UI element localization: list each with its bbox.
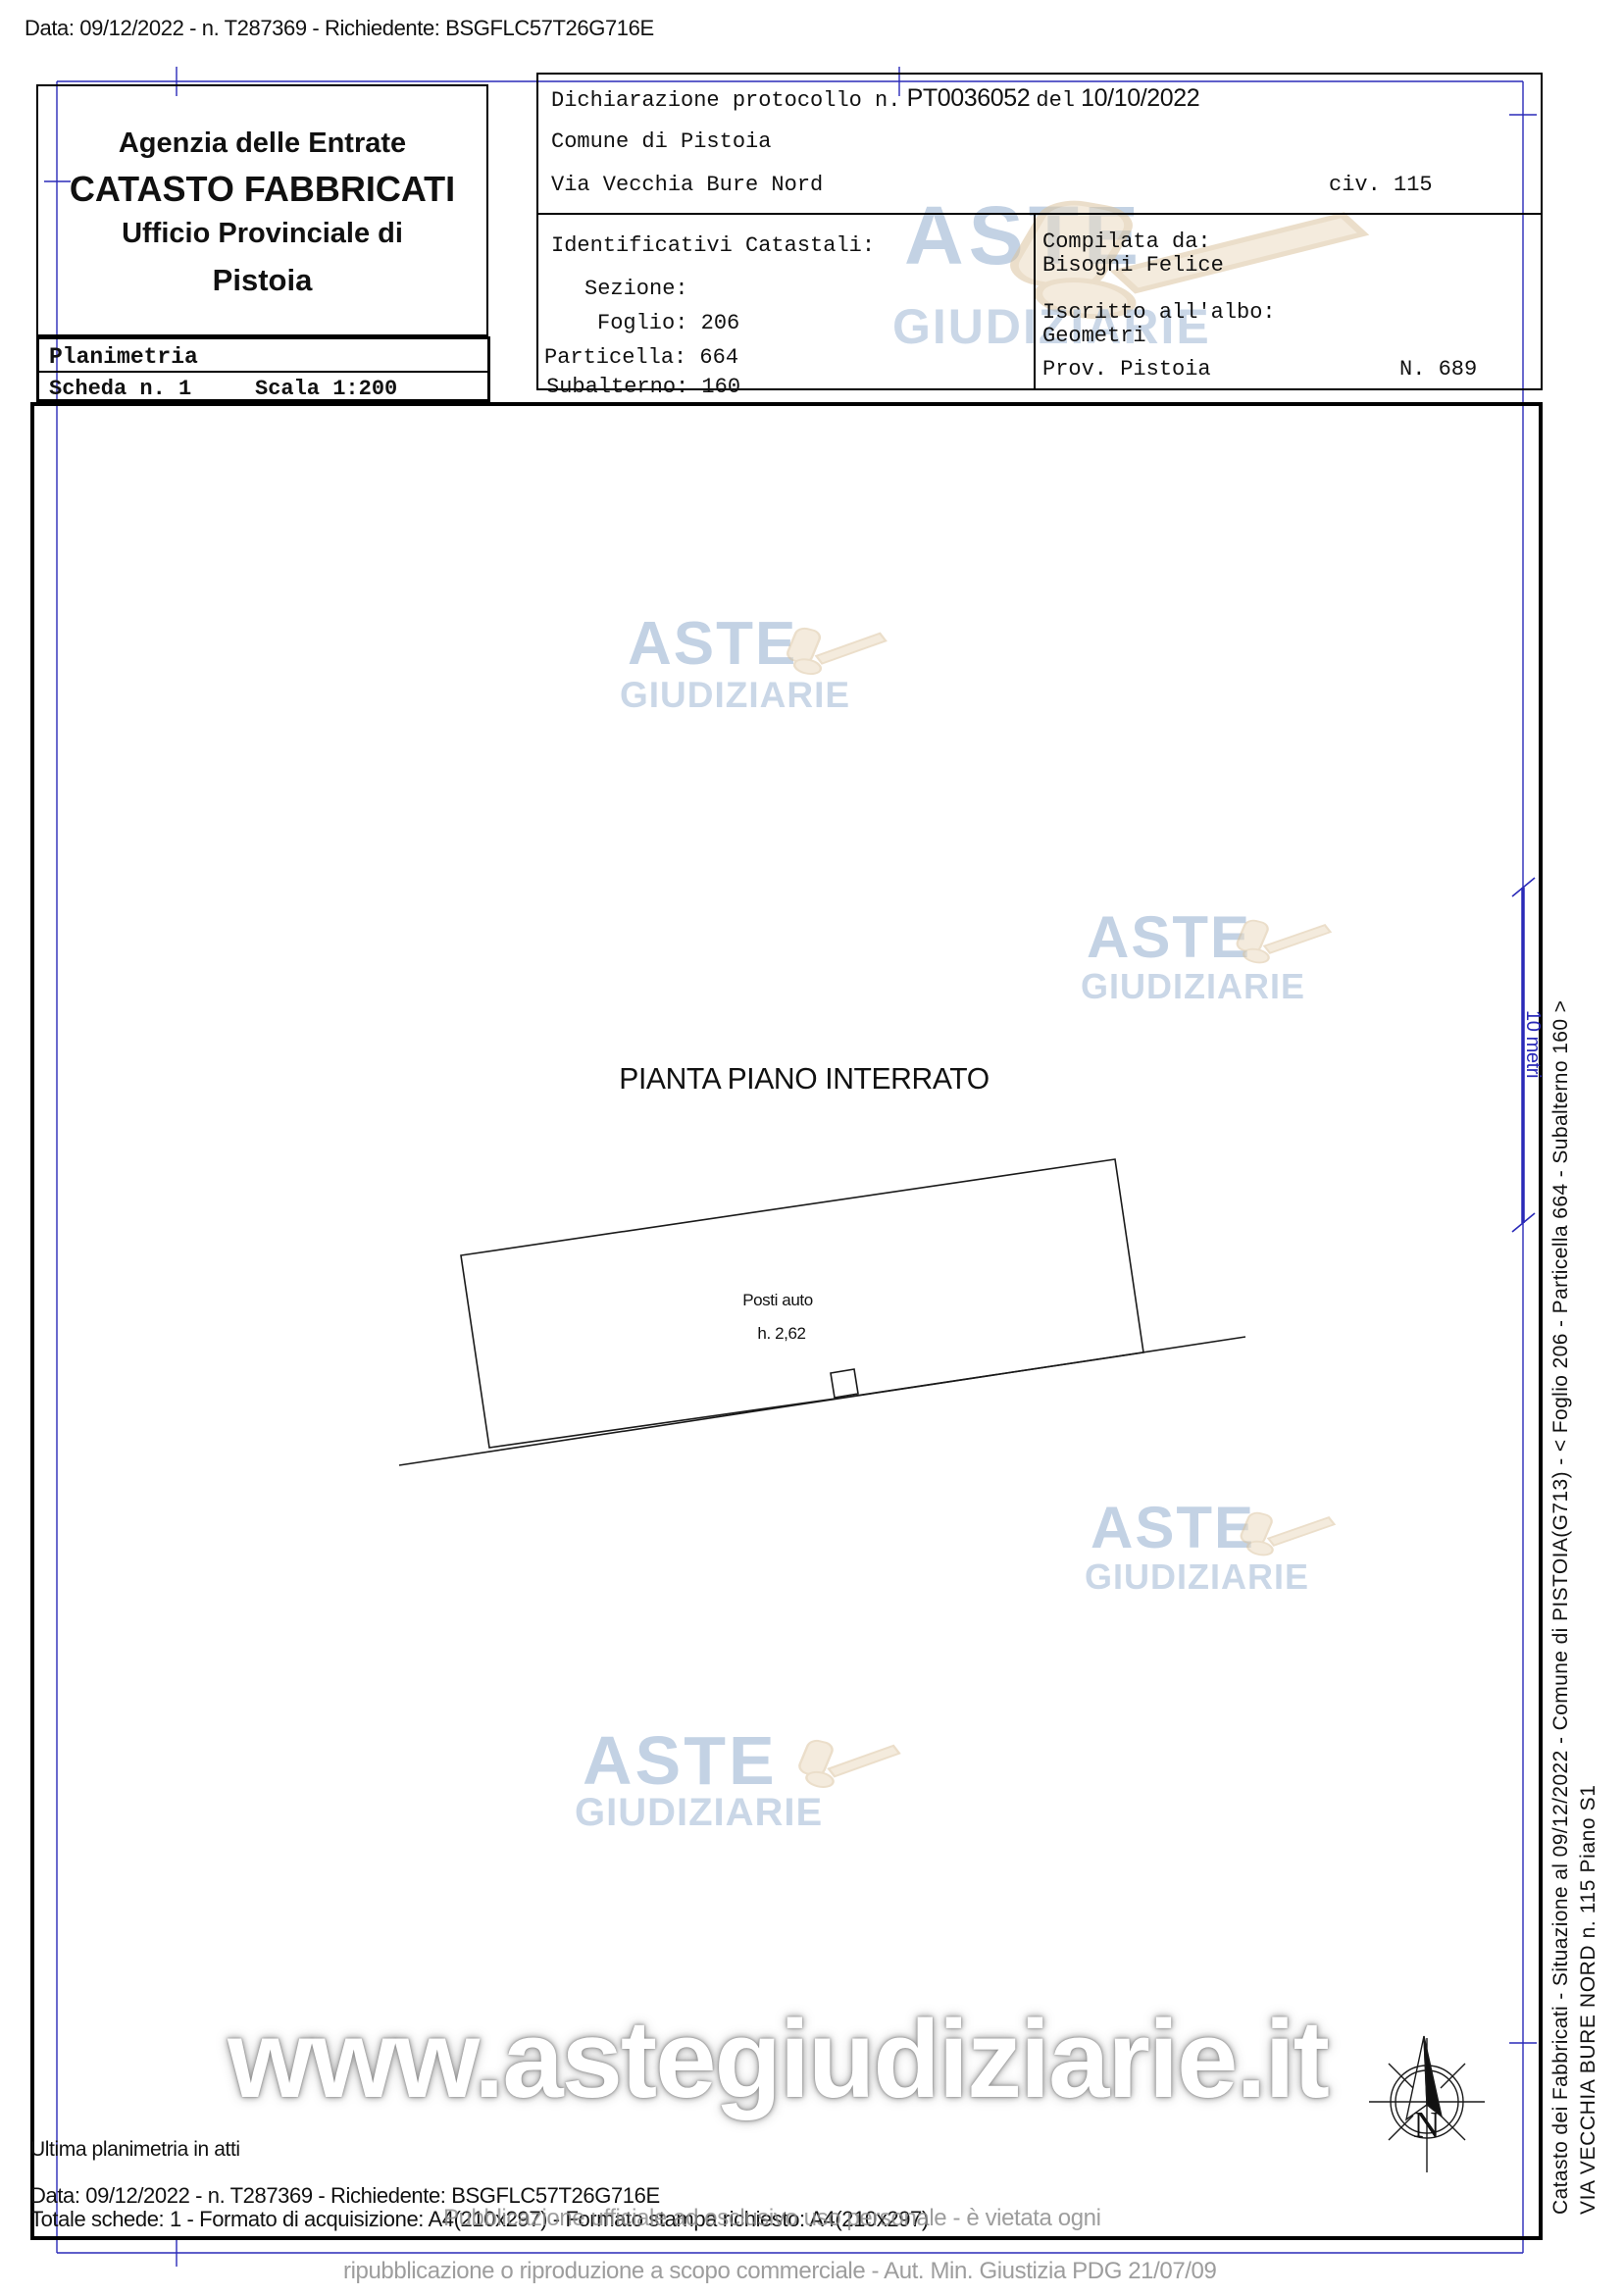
compiler-reg-number: N. 689	[1399, 357, 1477, 382]
office-label: Ufficio Provinciale di	[38, 218, 486, 250]
compiler-prov: Prov. Pistoia	[1042, 357, 1211, 382]
protocol-del: del	[1036, 88, 1075, 113]
albo-label: Iscritto all'albo:	[1042, 300, 1276, 325]
planimetria-box: Planimetria Scheda n. 1 Scala 1:200	[36, 336, 490, 402]
planimetria-divider	[39, 371, 487, 373]
catasto-title: CATASTO FABBRICATI	[38, 169, 486, 209]
agency-box: Agenzia delle Entrate CATASTO FABBRICATI…	[36, 84, 488, 336]
declaration-col-divider	[1034, 215, 1036, 390]
protocol-line: Dichiarazione protocollo n. PT0036052 de…	[551, 84, 1199, 113]
scheda-number: Scheda n. 1	[49, 377, 191, 401]
compiler-label: Compilata da:	[1042, 230, 1211, 254]
protocol-date: 10/10/2022	[1081, 84, 1199, 112]
declaration-row-divider	[538, 213, 1541, 215]
declaration-box: Dichiarazione protocollo n. PT0036052 de…	[536, 73, 1543, 390]
subalterno-value: Subalterno: 160	[546, 375, 740, 399]
footer-ultima: Ultima planimetria in atti	[30, 2138, 240, 2162]
ceiling-height-label: h. 2,62	[733, 1324, 831, 1344]
province-name: Pistoia	[38, 263, 486, 298]
room-label: Posti auto	[729, 1291, 827, 1310]
foglio-value: Foglio: 206	[597, 311, 739, 335]
albo-value: Geometri	[1042, 324, 1146, 348]
plan-title: PIANTA PIANO INTERRATO	[557, 1061, 1051, 1097]
cadastral-document-page: ASTE GIUDIZIARIE ASTE GIUDIZIARIE ASTE G…	[0, 0, 1624, 2296]
protocol-label: Dichiarazione protocollo n.	[551, 88, 900, 113]
street-line: Via Vecchia Bure Nord	[551, 173, 823, 197]
particella-value: Particella: 664	[544, 345, 738, 370]
protocol-number: PT0036052	[907, 84, 1031, 112]
sezione-label: Sezione:	[584, 277, 688, 301]
scale-bar-label: 10 metri	[1521, 1010, 1544, 1078]
scale-label: Scala 1:200	[255, 377, 397, 401]
legal-notice-line1: Pubblicazione ufficiale ad esclusivo uso…	[443, 2205, 1101, 2232]
civic-number: civ. 115	[1329, 173, 1433, 197]
comune-line: Comune di Pistoia	[551, 129, 771, 154]
plan-sheet-border	[30, 402, 1543, 2240]
request-header-line: Data: 09/12/2022 - n. T287369 - Richiede…	[25, 16, 654, 40]
compiler-name: Bisogni Felice	[1042, 253, 1224, 278]
cadastral-title: Identificativi Catastali:	[551, 233, 875, 258]
margin-text-address: VIA VECCHIA BURE NORD n. 115 Piano S1	[1577, 1785, 1600, 2216]
planimetria-title: Planimetria	[49, 344, 198, 370]
compass-north-label: N	[1406, 2105, 1447, 2148]
agency-name: Agenzia delle Entrate	[38, 128, 486, 160]
legal-notice-line2: ripubblicazione o riproduzione a scopo c…	[343, 2258, 1216, 2285]
margin-text-cadastral: Catasto dei Fabbricati - Situazione al 0…	[1549, 1000, 1573, 2215]
